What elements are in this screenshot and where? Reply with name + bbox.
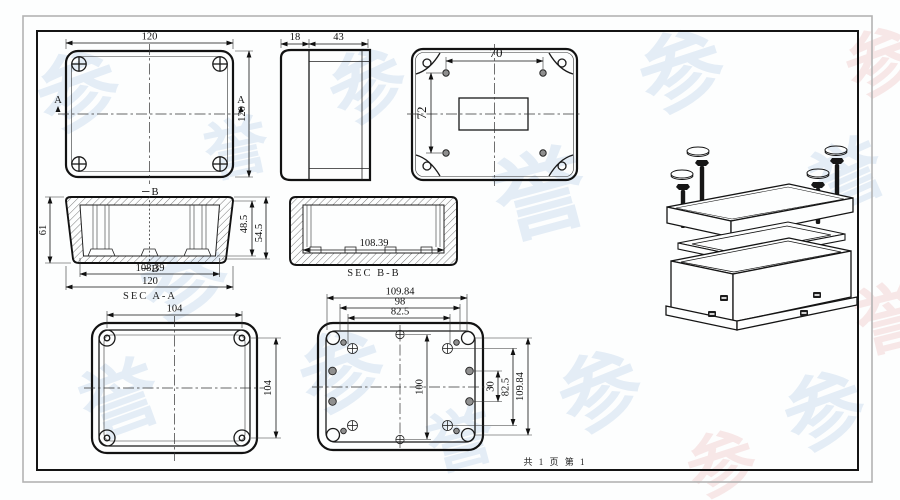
svg-text:61: 61 [38, 225, 49, 236]
svg-text:48.5: 48.5 [239, 215, 250, 233]
svg-text:30: 30 [486, 381, 497, 392]
svg-text:109.84: 109.84 [515, 371, 526, 401]
svg-text:43: 43 [333, 32, 344, 43]
svg-text:108.39: 108.39 [360, 238, 389, 249]
dim-base-top: 109.84 98 82.5 [327, 287, 467, 345]
svg-text:82.5: 82.5 [391, 307, 409, 318]
drawing-sheet: 参 誉 参 誉 参 誉 参 参 誉 参 誉 参 誉 参 誉 参 [0, 0, 900, 500]
dim-base-center: 100 [405, 335, 431, 440]
svg-text:100: 100 [415, 379, 426, 395]
section-label: A [54, 95, 62, 106]
section-label: A [237, 95, 245, 106]
view-base: 109.84 98 82.5 100 30 82.5 [312, 287, 532, 451]
svg-text:120: 120 [142, 276, 158, 287]
svg-text:82.5: 82.5 [501, 378, 512, 396]
svg-text:B: B [151, 187, 158, 198]
section-title: SEC A-A [123, 291, 177, 302]
svg-text:120: 120 [237, 106, 248, 122]
view-sec-aa: B B 61 48.5 54.5 108.39 [38, 187, 270, 302]
svg-text:104: 104 [167, 304, 184, 315]
dim-top-height: 120 [235, 51, 253, 177]
svg-text:72: 72 [414, 107, 429, 120]
view-top: A A 120 120 [54, 32, 253, 185]
view-lid: 104 104 [84, 304, 281, 462]
view-exploded [666, 146, 857, 330]
svg-text:108.39: 108.39 [136, 263, 165, 274]
dim-back-v: 72 [414, 73, 442, 153]
svg-text:18: 18 [290, 32, 301, 43]
svg-text:70: 70 [490, 45, 503, 60]
view-side: 18 43 [281, 32, 370, 180]
dim-base-right: 30 82.5 109.84 [453, 338, 532, 435]
svg-text:120: 120 [142, 32, 158, 43]
dim-side: 18 43 [281, 32, 368, 48]
drawing-canvas: A A 120 120 [0, 0, 900, 500]
section-title: SEC B-B [347, 268, 400, 279]
page-footer: 共 1 页 第 1 [505, 455, 605, 468]
view-back: 70 72 [407, 44, 582, 186]
svg-text:54.5: 54.5 [254, 224, 265, 242]
svg-text:104: 104 [263, 379, 274, 396]
view-sec-bb: 108.39 SEC B-B [290, 197, 457, 279]
